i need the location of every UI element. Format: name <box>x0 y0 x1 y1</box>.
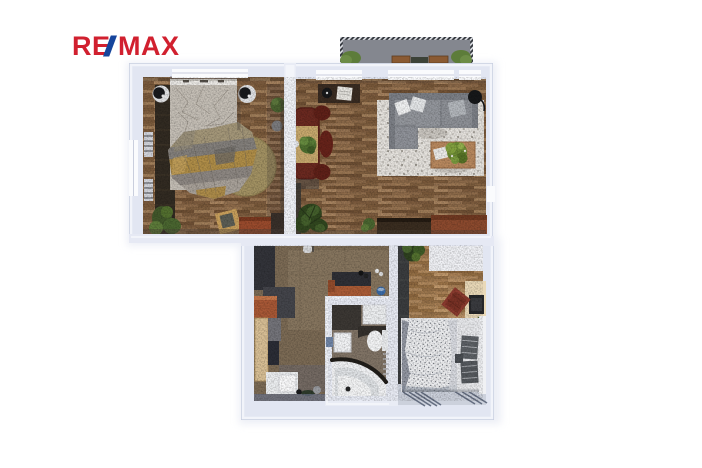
svg-text:MAX: MAX <box>118 31 180 61</box>
